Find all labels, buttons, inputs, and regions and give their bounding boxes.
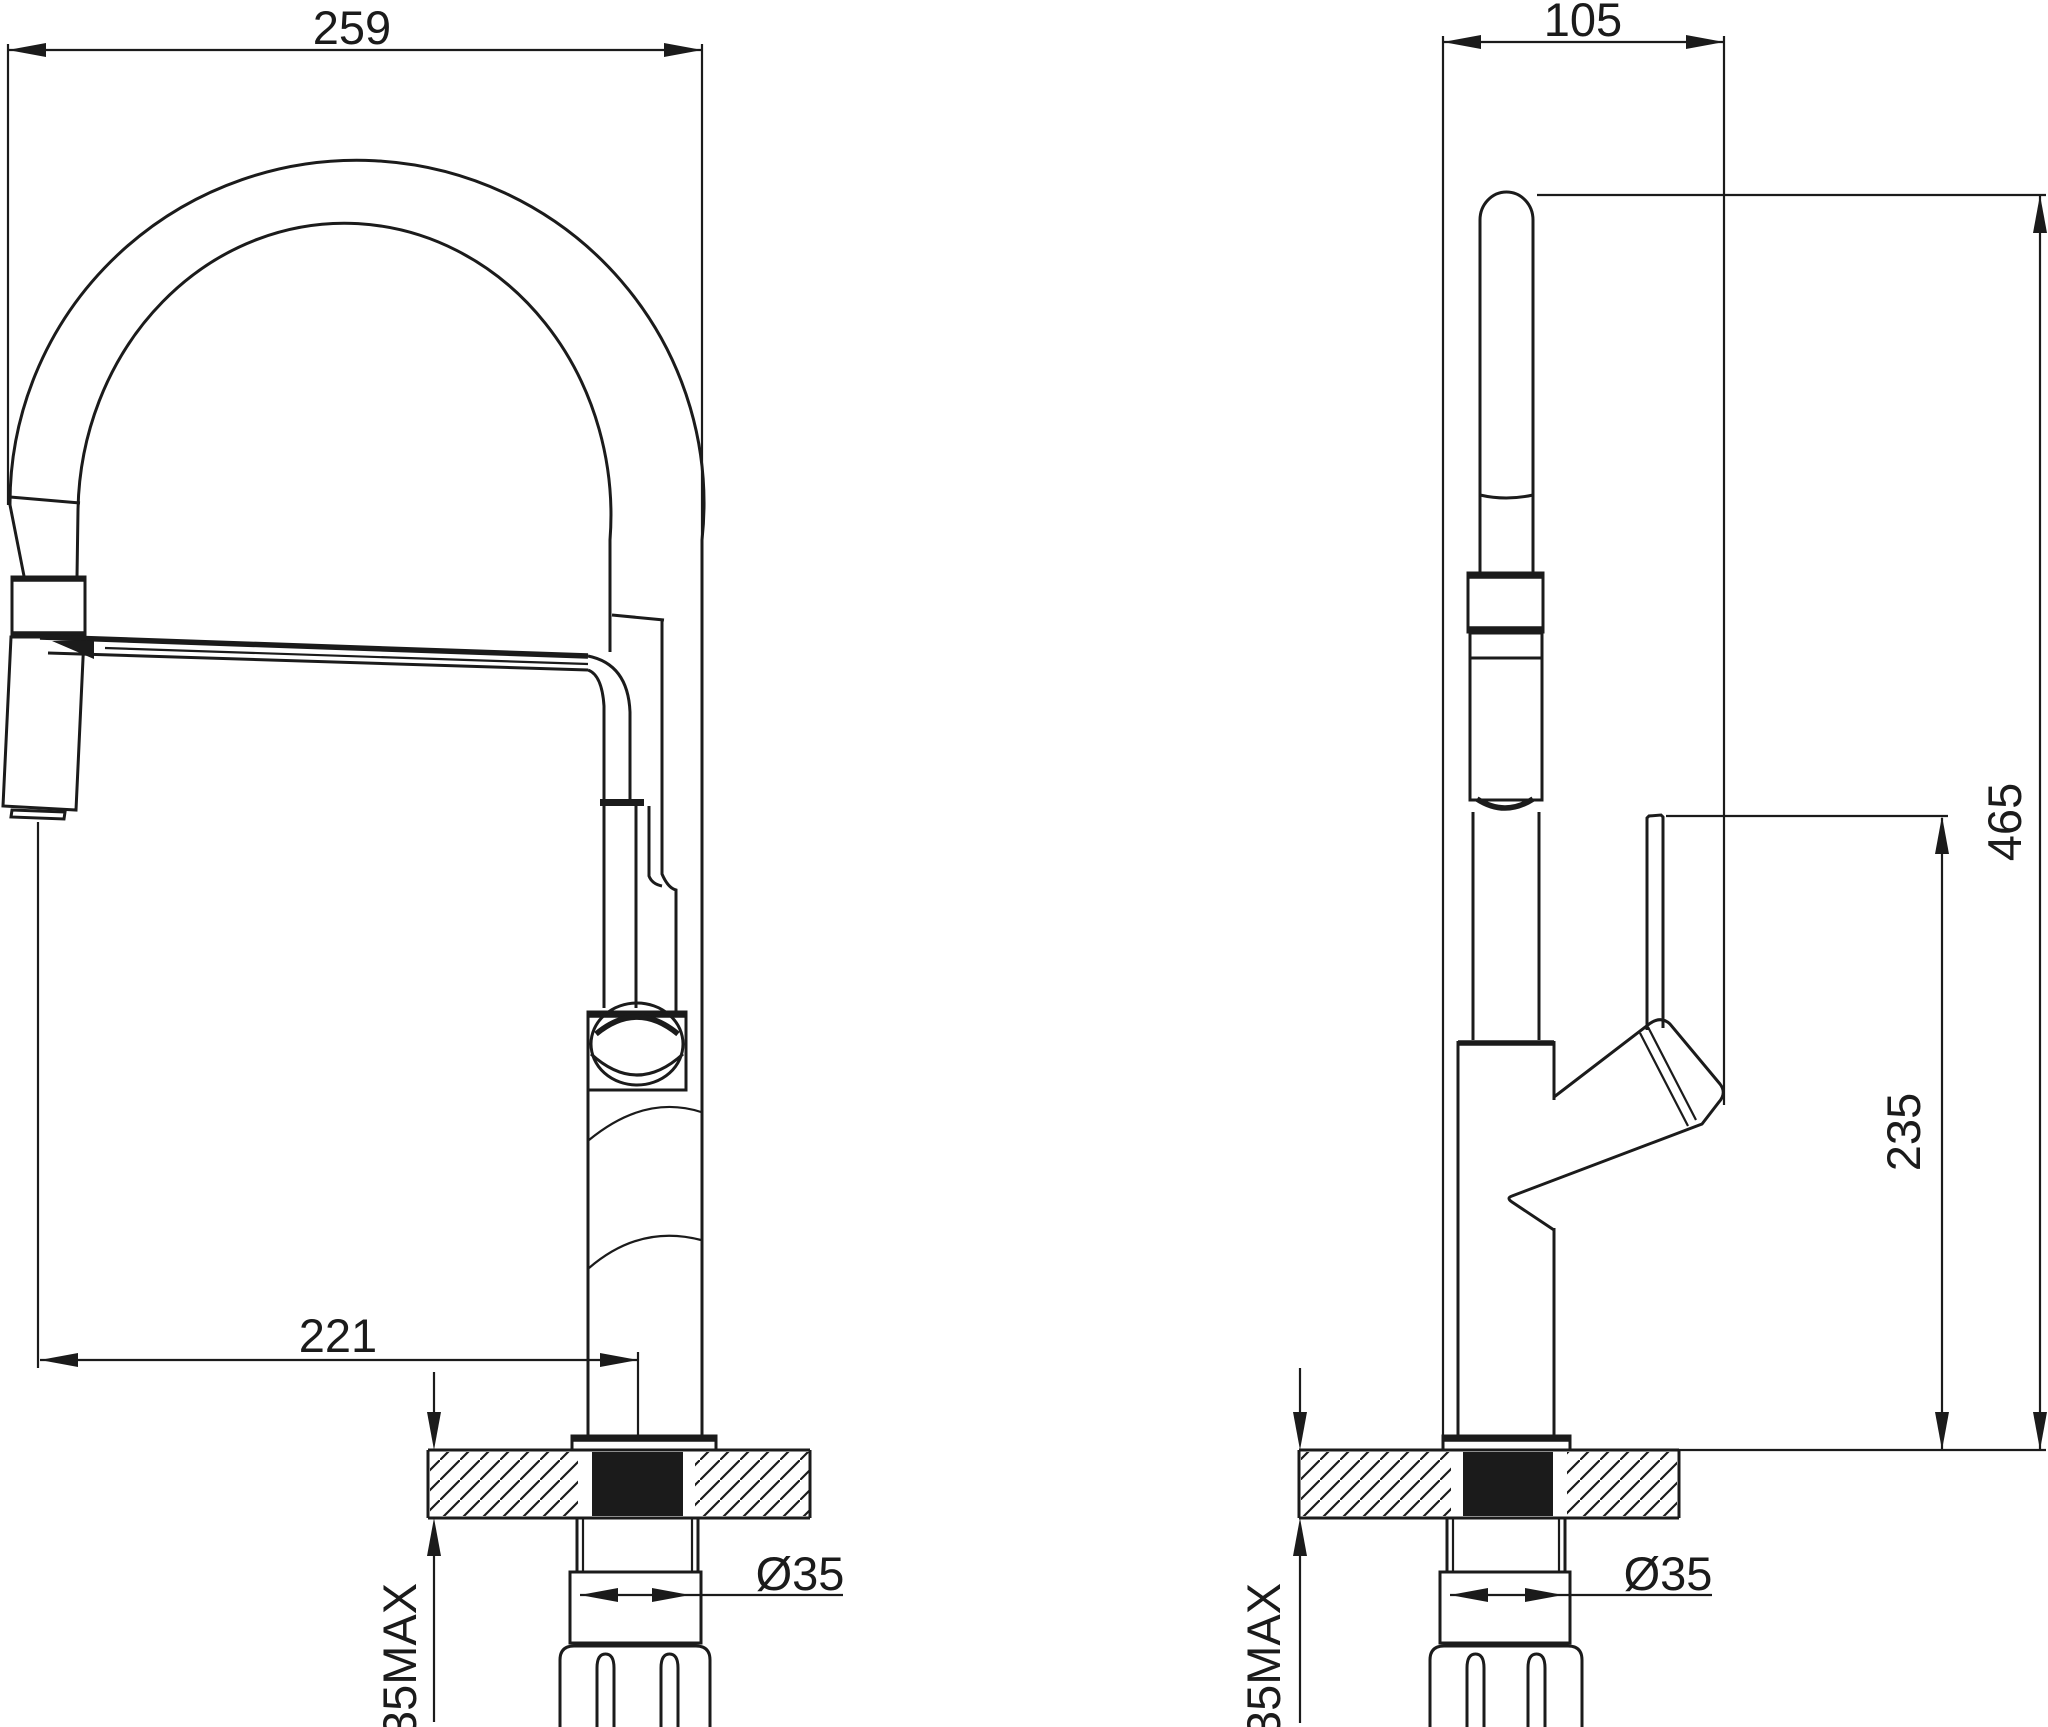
dim-label-spout-reach: 221: [299, 1309, 377, 1362]
hose-seam-left: [10, 497, 80, 503]
arrow-up-icon: [2033, 195, 2047, 233]
dim-overall-depth: 105: [1443, 0, 1724, 1436]
body-seam-upper: [589, 1107, 701, 1140]
arrow-up-icon: [1935, 816, 1949, 854]
arrow-down-icon: [1293, 1412, 1307, 1450]
faucet-technical-drawing: 259 221 Ø35 35MAX: [0, 0, 2048, 1727]
base-flange-side: [1443, 1436, 1570, 1450]
arrow-down-icon: [427, 1412, 441, 1450]
spout-bend-step: [600, 799, 644, 806]
dim-deck-thickness-side: 35MAX: [1237, 1368, 1307, 1727]
arrow-down-icon: [1935, 1412, 1949, 1450]
ball-joint: [588, 1003, 686, 1090]
base-flange: [572, 1436, 716, 1450]
dim-label-overall-depth: 105: [1544, 0, 1622, 46]
arrow-up-icon: [427, 1518, 441, 1556]
dim-handle-height: 235: [1666, 816, 1949, 1450]
body-seam-lower: [589, 1236, 701, 1268]
spout-arch: [10, 160, 704, 1436]
threaded-shank-section: [592, 1452, 683, 1516]
countertop-section: [428, 1450, 810, 1518]
sprayer-head: [3, 577, 85, 819]
front-view: 259 221 Ø35 35MAX: [3, 1, 844, 1727]
dim-label-overall-height: 465: [1978, 783, 2031, 861]
faucet-body: [588, 1090, 701, 1436]
arrow-right-icon: [1525, 1588, 1563, 1602]
dim-mounting-hole-side: Ø35: [1450, 1547, 1712, 1602]
dim-overall-width: 259: [8, 1, 702, 540]
dim-deck-thickness-front: 35MAX: [373, 1372, 441, 1727]
arrow-left-icon: [1450, 1588, 1488, 1602]
arrow-left-icon: [580, 1588, 618, 1602]
arrow-left-icon: [8, 43, 46, 57]
dim-mounting-hole-front: Ø35: [580, 1547, 844, 1602]
tube-seam: [1480, 495, 1533, 498]
arrow-right-icon: [1686, 35, 1724, 49]
arrow-left-icon: [40, 1353, 78, 1367]
arrow-down-icon: [2033, 1412, 2047, 1450]
spout-root-wedge: [52, 640, 94, 659]
dim-spout-reach: 221: [38, 822, 638, 1438]
spout-seam-1: [1640, 1033, 1688, 1126]
riser-tube: [1480, 192, 1533, 573]
mounting-shank: [570, 1518, 701, 1643]
dim-label-deck-thickness-side: 35MAX: [1237, 1583, 1290, 1727]
neck: [1473, 812, 1539, 1040]
cartridge-housing: [1468, 573, 1543, 1040]
threaded-shank-section: [1463, 1452, 1553, 1516]
arrow-left-icon: [1443, 35, 1481, 49]
mounting-nut: [560, 1646, 710, 1727]
dim-overall-height: 465: [1537, 195, 2047, 1450]
hose-seam-right: [612, 615, 664, 620]
arrow-right-icon: [600, 1353, 638, 1367]
dim-label-deck-thickness-front: 35MAX: [373, 1583, 426, 1727]
countertop-section-side: [1299, 1450, 2046, 1518]
spout-arm: [40, 637, 662, 1008]
sprayer-nozzle-cap: [11, 810, 65, 819]
angled-spout: [1509, 1020, 1723, 1230]
dim-label-overall-width: 259: [313, 1, 391, 54]
mounting-washer: [570, 1572, 701, 1643]
handle-lever: [1647, 815, 1663, 1030]
spout-seam-2: [1648, 1027, 1696, 1120]
mounting-washer: [1440, 1572, 1570, 1643]
dim-label-handle-height: 235: [1877, 1093, 1930, 1171]
arrow-up-icon: [1293, 1518, 1307, 1556]
arrow-right-icon: [652, 1588, 690, 1602]
mounting-nut-side: [1430, 1646, 1582, 1727]
side-view: 105 465 235 Ø35: [1237, 0, 2047, 1727]
dim-label-mounting-hole-front: Ø35: [756, 1547, 845, 1600]
dim-label-mounting-hole-side: Ø35: [1624, 1547, 1713, 1600]
mounting-shank-side: [1440, 1518, 1570, 1643]
drawing-canvas: 259 221 Ø35 35MAX: [0, 0, 2048, 1727]
arrow-right-icon: [664, 43, 702, 57]
faucet-body-side: [1458, 1020, 1723, 1436]
